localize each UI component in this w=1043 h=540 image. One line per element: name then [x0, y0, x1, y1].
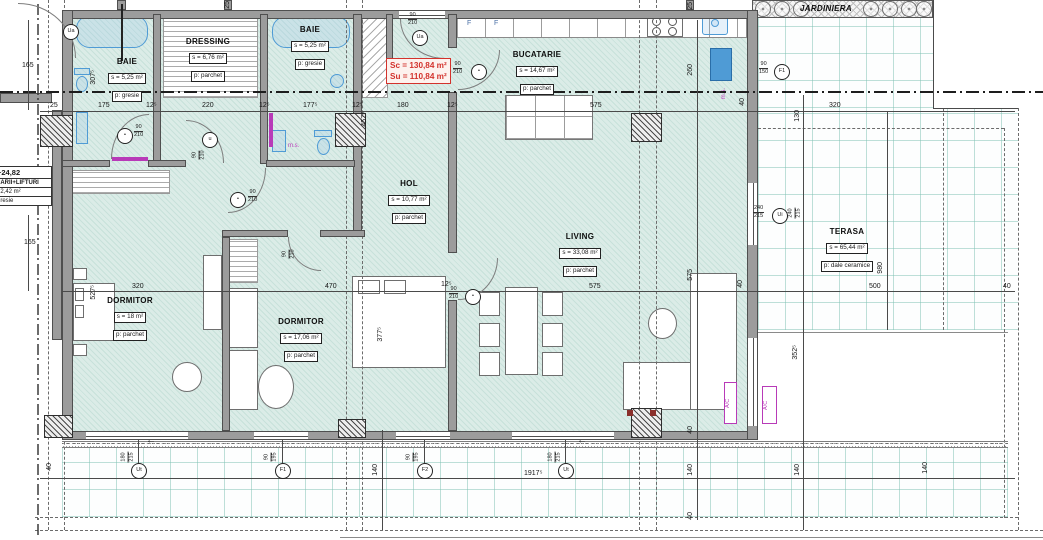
dim-line [803, 95, 804, 530]
ac-unit: A/C [762, 386, 777, 424]
marker-leader [138, 440, 139, 463]
room-name: BAIE [270, 25, 350, 34]
marker-leader [424, 440, 425, 463]
toilet-tank [314, 130, 332, 137]
room-area: s = 33,08 m² [559, 248, 600, 259]
wall-neighbor [0, 93, 52, 103]
grid-line [362, 0, 363, 530]
dim-line [62, 291, 1015, 292]
door-size: 240 215 [753, 205, 764, 219]
dim-label: 12⁵ [146, 102, 157, 109]
dining-chair [542, 352, 563, 376]
door-width: 90 [192, 150, 200, 159]
dining-chair [542, 292, 563, 316]
room-name: DRESSING [168, 37, 248, 46]
room-area: s = 6,76 m² [189, 53, 227, 64]
window-hol [396, 431, 450, 440]
wall-corridor [62, 160, 110, 167]
washing-machine [272, 130, 286, 152]
floor-plan: JARDINIERA m.s. F F m.s. [0, 0, 1043, 540]
door-height: 210 [289, 249, 296, 258]
dim-label: 40 [687, 426, 694, 434]
room-floor: p: parchet [520, 84, 554, 95]
dim-line [40, 111, 1015, 112]
dim-label: 25 [224, 1, 231, 9]
dim-label: 12⁵ [447, 102, 458, 109]
plant-icon [774, 1, 790, 17]
door-width: 90 [248, 189, 257, 197]
dim-label: 140 [922, 462, 929, 474]
door-height: 210 [453, 69, 462, 76]
dim-label: 140 [794, 464, 801, 476]
wall-corner-mark [627, 410, 633, 416]
terrace-edge-line [1004, 128, 1005, 518]
terrace-edge-line [35, 517, 1018, 518]
door-size: 90 210 [134, 124, 143, 138]
armchair [258, 365, 294, 409]
door-marker-ua: Ua [63, 24, 79, 40]
door-size: 90 210 [449, 286, 458, 300]
wall-hol-living [448, 300, 457, 431]
washing-machine [710, 48, 732, 81]
terrace-edge-line [35, 530, 1043, 531]
room-name: HOL [369, 179, 449, 188]
door-height: 215 [753, 213, 764, 220]
window-size: 90 195 [406, 452, 420, 461]
dim-label: 320 [132, 283, 144, 290]
dim-label: 470 [325, 283, 337, 290]
grid-line [346, 0, 347, 530]
bathtub [76, 15, 148, 48]
dim-label: 260 [687, 64, 694, 76]
terrace-edge-line [1018, 108, 1019, 530]
dim-label: 377⁵ [377, 327, 384, 342]
dim-label: 575 [590, 102, 602, 109]
door-marker-baie2: • [230, 192, 246, 208]
door-marker-dressing: u [202, 132, 218, 148]
wall-corner-mark [650, 410, 656, 416]
dim-label: 12⁵ [259, 102, 270, 109]
room-floor: p: parchet [284, 351, 318, 362]
dim-line [697, 20, 698, 520]
room-label-bucatarie: BUCATARIE s = 14,67 m² p: parchet [497, 50, 577, 95]
plant-icon [916, 1, 932, 17]
room-name: LIVING [540, 232, 620, 241]
window-width: 90 [759, 61, 768, 69]
door-leaf [121, 4, 123, 61]
room-label-baie1: BAIE s = 5,25 m² p: gresie [87, 57, 167, 102]
room-area: s = 10,77 m² [388, 195, 429, 206]
dim-label: 457⁵ [361, 112, 368, 127]
boundary-line [933, 0, 934, 108]
door-height: 210 [449, 294, 458, 301]
centerline-vertical [37, 0, 39, 535]
door-marker-kitchen: • [471, 64, 487, 80]
kitchen-cabinet-letter: F [467, 20, 471, 27]
dim-label: 500 [869, 283, 881, 290]
window-width: 90 [406, 452, 414, 461]
dim-label: 40 [737, 280, 744, 288]
door-marker-terasa: Ui [772, 208, 788, 224]
marker-leader [282, 440, 283, 463]
dim-label: 175 [98, 102, 110, 109]
dim-label: 25 [687, 2, 694, 10]
room-label-baie2: BAIE s = 5,25 m² p: gresie [270, 25, 350, 70]
window-dorm1 [86, 431, 188, 440]
wall-corridor [148, 160, 186, 167]
door-width: 180 [548, 451, 556, 462]
door-size: 90 210 [192, 150, 206, 159]
room-name: DORMITOR [261, 317, 341, 326]
door-width: 90 [408, 12, 417, 20]
dim-label: 575 [589, 283, 601, 290]
dim-label: 130 [794, 110, 801, 122]
pillow [75, 288, 84, 301]
stairwell-area: 32,42 m² [0, 188, 51, 197]
bathroom-sink [330, 74, 344, 88]
marker-leader [565, 440, 566, 463]
dim-label: 575 [687, 269, 694, 281]
dim-label: 40 [1003, 283, 1011, 290]
room-floor: p: parchet [563, 266, 597, 277]
dining-chair [479, 292, 500, 316]
window-height: 195 [413, 452, 420, 461]
sofa-seat [623, 362, 691, 410]
room-label-dormitor2: DORMITOR s = 17,06 m² p: parchet [261, 317, 341, 362]
grid-line [639, 0, 640, 530]
dim-label: 40 [46, 463, 53, 471]
door-size: 90 210 [282, 249, 296, 258]
dim-label: 25 [50, 102, 58, 109]
window-dorm2 [254, 431, 308, 440]
wall-hol-living [448, 14, 457, 48]
opening-direction-arrow: ← [577, 436, 587, 446]
room-name: TERASA [807, 227, 887, 236]
door-size: 90 210 [248, 189, 257, 203]
room-name: DORMITOR [90, 296, 170, 305]
dining-table [505, 287, 538, 375]
door-marker-ua-entry: Ua [412, 30, 428, 46]
door-height: 210 [199, 150, 206, 159]
dresser [203, 255, 222, 330]
door-height: 215 [795, 207, 802, 218]
room-floor: p: dale ceramice [821, 261, 873, 272]
plant-icon [901, 1, 917, 17]
plant-icon [863, 1, 879, 17]
grid-line [48, 0, 49, 530]
door-height: 215 [555, 451, 562, 462]
door-width: 240 [788, 207, 796, 218]
room-area: s = 14,67 m² [516, 66, 557, 77]
plant-icon [882, 1, 898, 17]
window-marker-f1-terasa: F1 [774, 64, 790, 80]
closet [228, 350, 258, 410]
entry-door-opening [399, 10, 445, 19]
window-size: 90 150 [759, 61, 768, 75]
dim-label: 1917⁵ [524, 470, 542, 477]
opening-direction-arrow: ← [146, 436, 156, 446]
column [631, 408, 662, 438]
door-size: 240 215 [788, 207, 802, 218]
dim-line [28, 215, 29, 291]
door-height: 210 [248, 197, 257, 204]
dim-label: 177⁵ [303, 102, 318, 109]
dim-label: 980 [877, 262, 884, 274]
dim-label: 180 [397, 102, 409, 109]
pillow [75, 305, 84, 318]
room-label-dressing: DRESSING s = 6,76 m² p: parchet [168, 37, 248, 82]
wall-left [62, 10, 73, 440]
column [631, 113, 662, 142]
bathroom-sink [76, 112, 88, 144]
dorm2-wardrobe [228, 239, 258, 283]
dining-chair [479, 323, 500, 347]
elevation-label: +24,82 [0, 167, 51, 179]
pouf [172, 362, 202, 392]
room-floor: p: parchet [191, 71, 225, 82]
dim-label: 12⁵ [352, 102, 363, 109]
dining-chair [479, 352, 500, 376]
door-width: 90 [282, 249, 290, 258]
window-size: 90 195 [264, 452, 278, 461]
sill-band [62, 441, 1008, 448]
wall-hol-living [448, 92, 457, 253]
lower-terrace-floor [62, 448, 1008, 517]
stove-burner-icon [668, 27, 677, 36]
terasa-floor-upper [758, 18, 933, 108]
dim-label: 352⁵ [792, 345, 799, 360]
dim-label: 165 [22, 62, 34, 69]
door-width: 90 [453, 61, 462, 69]
room-floor: p: parchet [392, 213, 426, 224]
wall-corridor [266, 160, 355, 167]
dim-label: 140 [372, 464, 379, 476]
dim-label: 220 [202, 102, 214, 109]
door-height: 210 [134, 132, 143, 139]
door-size: 90 210 [408, 12, 417, 26]
door-width: 180 [121, 451, 129, 462]
dim-line [382, 430, 383, 530]
jardiniera-label: JARDINIERA [800, 4, 852, 13]
dining-chair [542, 323, 563, 347]
room-area: s = 17,06 m² [280, 333, 321, 344]
stairwell-block: +24,82 CARII+LIFTURI 32,42 m² gresie [0, 166, 52, 206]
dim-label: 40 [687, 512, 694, 520]
coffee-table [648, 308, 677, 339]
window-marker-f1: F1 [275, 463, 291, 479]
door-width: 240 [753, 205, 764, 213]
nightstand [73, 268, 87, 280]
washing-machine-label: m.s. [288, 143, 299, 149]
grid-line [656, 0, 657, 530]
door-size: 180 215 [121, 451, 135, 462]
nightstand [73, 344, 87, 356]
terrace-bottom-line [747, 332, 1008, 333]
area-summary-box: Sc = 130,84 m² Su = 110,84 m² [386, 58, 451, 84]
toilet-bowl [317, 138, 330, 155]
window-width: 90 [264, 452, 272, 461]
kitchen-cabinet-letter: F [494, 20, 498, 27]
ac-unit: A/C [724, 382, 737, 424]
dim-label: 140 [687, 464, 694, 476]
built-area: Sc = 130,84 m² [390, 60, 447, 71]
door-living-terasa [747, 338, 758, 426]
room-label-hol: HOL s = 10,77 m² p: parchet [369, 179, 449, 224]
column [338, 419, 366, 438]
door-height: 210 [408, 20, 417, 27]
room-area: s = 5,25 m² [108, 73, 146, 84]
door-size: 90 210 [453, 61, 462, 75]
door-marker-baie1: • [117, 128, 133, 144]
room-name: BUCATARIE [497, 50, 577, 59]
window-marker-f2: F2 [417, 463, 433, 479]
terrace-edge-line [758, 128, 1004, 129]
room-floor: p: gresie [295, 59, 325, 70]
dim-label: 307⁵ [90, 70, 97, 85]
dorm1-wardrobe [66, 170, 170, 194]
door-marker-living: • [465, 289, 481, 305]
room-label-terasa: TERASA s = 65,44 m² p: dale ceramice [807, 227, 887, 272]
window-height: 150 [759, 69, 768, 76]
kitchen-sink-drain [711, 19, 719, 27]
wall-dorm1-dorm2 [222, 237, 230, 431]
room-area: s = 65,44 m² [826, 243, 867, 254]
door-marker-ut-living: Ut [558, 463, 574, 479]
closet [228, 288, 258, 348]
page-bottom-line [340, 537, 1043, 538]
column [44, 415, 73, 438]
door-size: 180 215 [548, 451, 562, 462]
dim-line [887, 112, 888, 330]
shaft-hatch [362, 14, 388, 98]
usable-area: Su = 110,84 m² [390, 71, 447, 82]
stairwell-name: CARII+LIFTURI [0, 179, 51, 188]
room-area: s = 5,25 m² [291, 41, 329, 52]
stairwell-floor: gresie [0, 197, 51, 205]
door-height: 215 [128, 451, 135, 462]
dim-line [40, 478, 1015, 479]
door-marker-ut: Ut [131, 463, 147, 479]
wall-dorm2-top [320, 230, 365, 237]
window-height: 195 [271, 452, 278, 461]
room-label-dormitor1: DORMITOR s = 18 m² p: parchet [90, 296, 170, 341]
dim-label: 320 [829, 102, 841, 109]
grid-line [943, 108, 944, 330]
radiator [269, 113, 273, 147]
boundary-line [933, 108, 1018, 109]
terasa-floor [758, 108, 1018, 330]
dim-label: 40 [739, 98, 746, 106]
kitchen-island [505, 95, 593, 140]
window-living [512, 431, 614, 440]
room-label-living: LIVING s = 33,08 m² p: parchet [540, 232, 620, 277]
room-name: BAIE [87, 57, 167, 66]
dim-label: 165 [24, 239, 36, 246]
washing-machine-label: m.s. [721, 88, 727, 99]
dim-label: 12⁵ [441, 281, 452, 288]
room-floor: p: gresie [112, 91, 142, 102]
room-area: s = 18 m² [114, 312, 146, 323]
door-width: 90 [134, 124, 143, 132]
room-floor: p: parchet [113, 330, 147, 341]
dim-label: 527⁵ [90, 285, 97, 300]
wall-dressing-baie2 [260, 14, 268, 164]
wall-dorm2-top [222, 230, 288, 237]
column [40, 115, 73, 147]
